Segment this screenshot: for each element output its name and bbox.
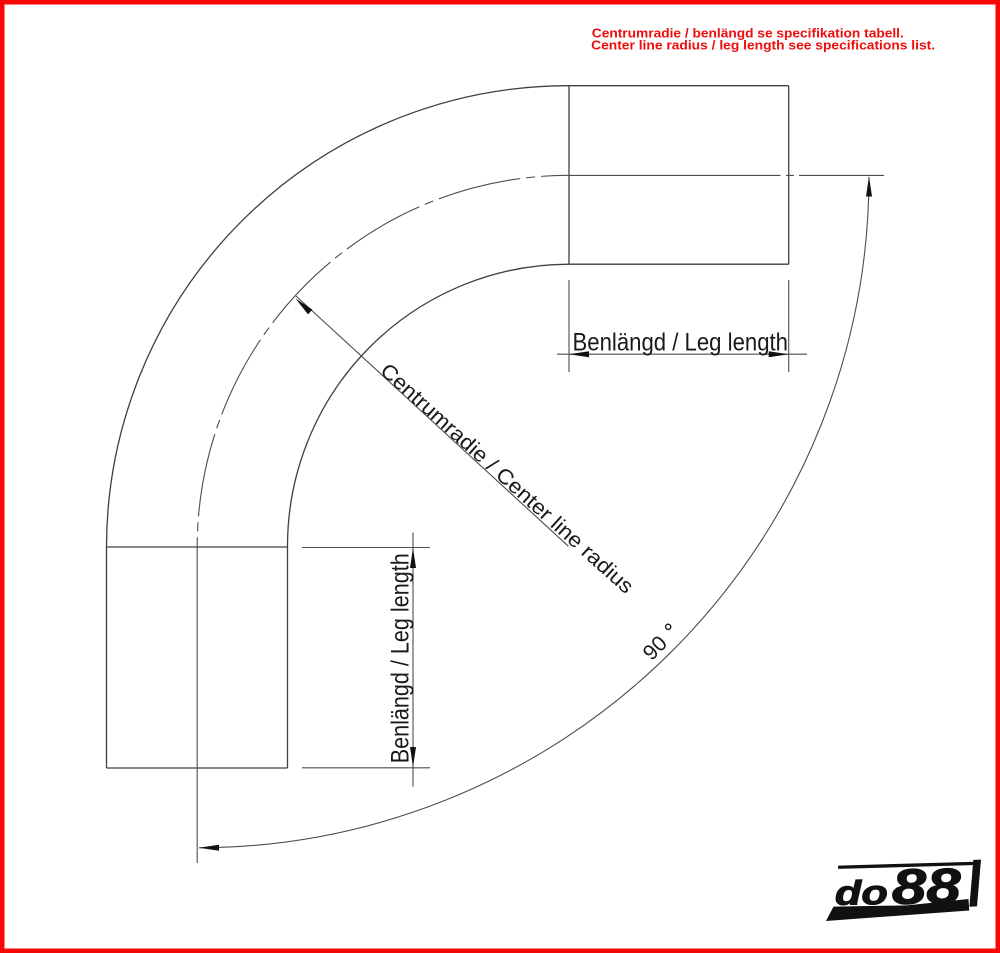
- svg-text:Center line radius / leg lengt: Center line radius / leg length see spec…: [591, 38, 935, 53]
- svg-text:Benlängd / Leg length: Benlängd / Leg length: [573, 328, 789, 356]
- svg-text:Benlängd / Leg length: Benlängd / Leg length: [386, 553, 414, 763]
